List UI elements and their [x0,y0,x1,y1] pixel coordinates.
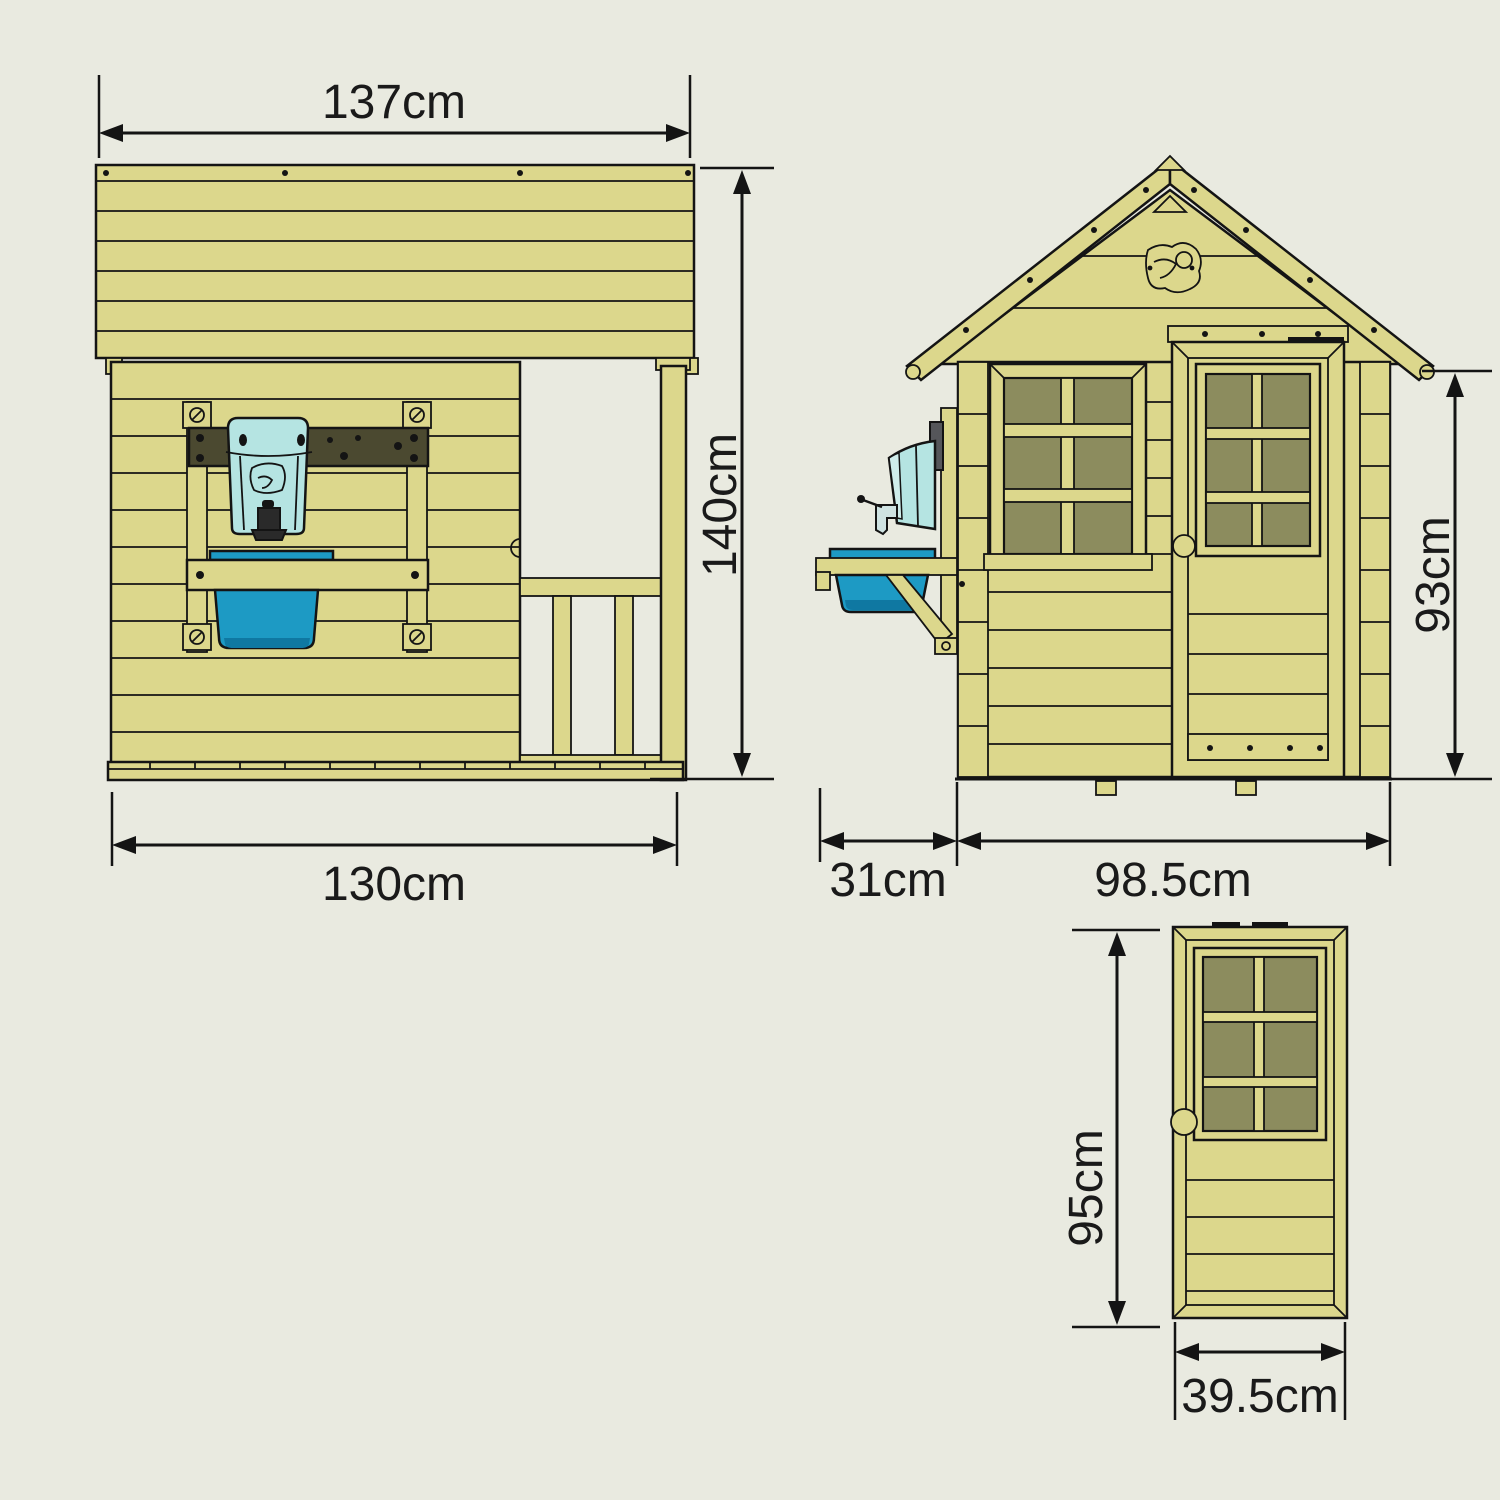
dim-label-140: 140cm [694,433,747,577]
tp-logo-badge [1146,243,1201,292]
mud-tub-side [215,590,318,648]
side-floor [108,762,683,780]
dim-label-95: 95cm [1060,1129,1113,1246]
dim-label-137: 137cm [322,76,466,129]
dim-label-130: 130cm [322,858,466,911]
dim-label-985: 98.5cm [1094,854,1251,907]
door-detail-knob [1171,1109,1197,1135]
porch-corner-post [661,366,686,780]
front-window [984,364,1152,570]
water-dispenser [226,418,312,540]
dim-label-395: 39.5cm [1181,1370,1338,1423]
door-knob [1173,535,1195,557]
counter-profile [816,558,957,575]
counter-side [187,560,428,590]
sink-rim-side [210,551,333,560]
side-roof [96,165,698,374]
door-detail-glazing [1194,948,1326,1140]
dim-label-93: 93cm [1407,516,1460,633]
dim-label-31: 31cm [829,854,946,907]
window-sill [984,554,1152,570]
front-door [1168,326,1348,777]
playhouse-dimension-diagram: 137cm 140cm 130cm [0,0,1500,1500]
